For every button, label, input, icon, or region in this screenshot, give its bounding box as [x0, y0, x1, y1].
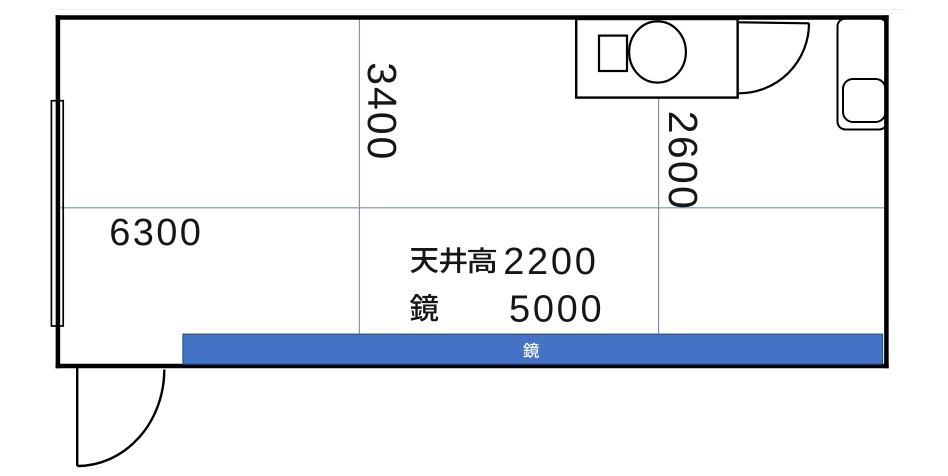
- svg-text:5000: 5000: [509, 289, 604, 331]
- svg-text:6300: 6300: [109, 212, 203, 254]
- svg-text:3400: 3400: [359, 62, 405, 161]
- svg-text:2200: 2200: [503, 241, 598, 283]
- svg-text:2600: 2600: [660, 111, 706, 211]
